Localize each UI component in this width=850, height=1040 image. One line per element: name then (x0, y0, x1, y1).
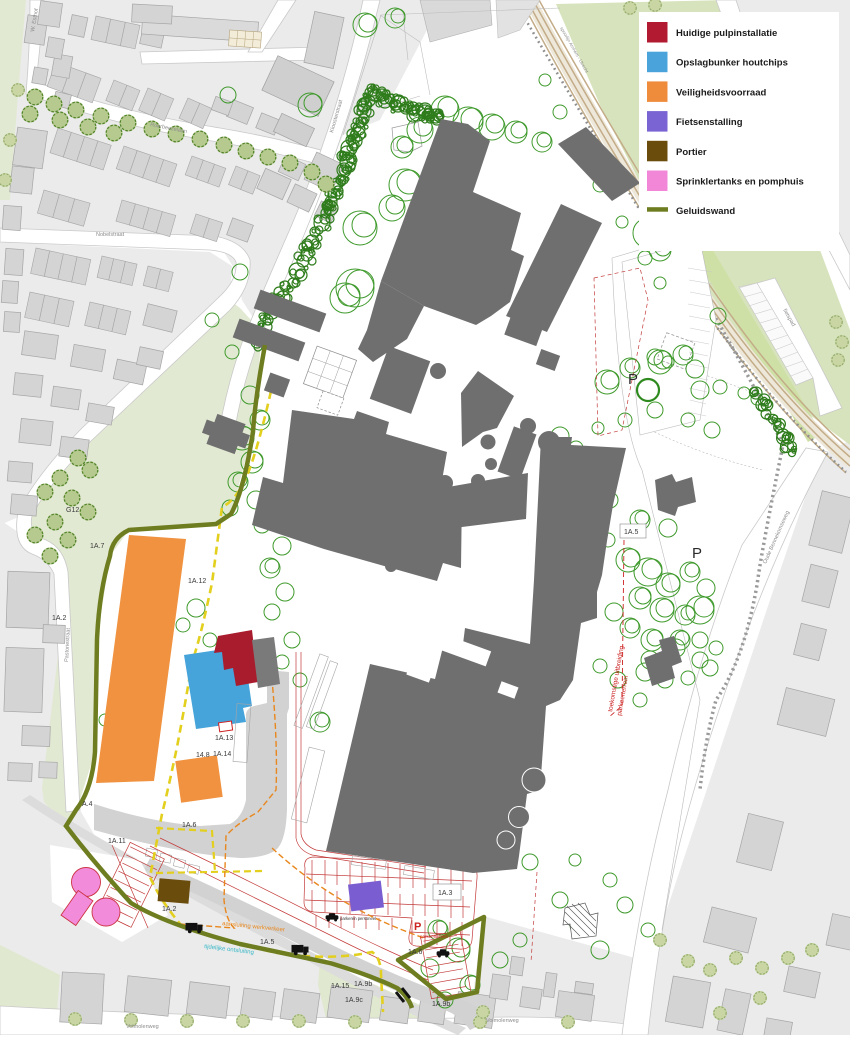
svg-text:1A.13: 1A.13 (215, 735, 233, 742)
svg-text:1A.6: 1A.6 (408, 949, 423, 956)
svg-text:P: P (628, 371, 638, 388)
svg-text:parkeerterrein: parkeerterrein (420, 934, 449, 939)
svg-text:Huidige pulpinstallatie: Huidige pulpinstallatie (676, 28, 777, 39)
svg-text:1A.7: 1A.7 (90, 543, 105, 550)
svg-text:Volmolenweg: Volmolenweg (126, 1024, 159, 1030)
svg-text:1A.2: 1A.2 (162, 906, 177, 913)
svg-text:1A.14: 1A.14 (213, 751, 231, 758)
svg-text:Geluidswand: Geluidswand (676, 206, 735, 217)
svg-text:P: P (692, 545, 702, 562)
svg-text:1A.9b: 1A.9b (432, 1001, 450, 1008)
svg-text:G12: G12 (66, 507, 79, 514)
svg-text:Volmolenweg: Volmolenweg (486, 1018, 519, 1024)
svg-text:Portier: Portier (676, 147, 707, 158)
svg-text:1A.15: 1A.15 (331, 983, 349, 990)
svg-text:1A.3: 1A.3 (438, 890, 453, 897)
svg-text:Fietsenstalling: Fietsenstalling (676, 117, 743, 128)
svg-text:1A.2: 1A.2 (52, 615, 67, 622)
svg-text:1A.12: 1A.12 (188, 578, 206, 585)
svg-text:P: P (414, 921, 421, 933)
svg-text:14.8: 14.8 (196, 752, 210, 759)
svg-text:parkeren personeel: parkeren personeel (340, 916, 376, 921)
svg-text:1A.9b: 1A.9b (354, 981, 372, 988)
svg-text:1A.5: 1A.5 (260, 939, 275, 946)
svg-text:A.4: A.4 (82, 801, 93, 808)
svg-text:Opslagbunker houtchips: Opslagbunker houtchips (676, 58, 788, 69)
svg-text:1A.6: 1A.6 (182, 822, 197, 829)
svg-text:Nobelstraat: Nobelstraat (96, 232, 125, 238)
svg-text:Sprinklertanks en pomphuis: Sprinklertanks en pomphuis (676, 177, 804, 188)
svg-text:Veiligheidsvoorraad: Veiligheidsvoorraad (676, 87, 766, 98)
svg-text:1A.11: 1A.11 (108, 838, 126, 845)
svg-text:1A.9c: 1A.9c (345, 997, 363, 1004)
svg-text:1A.5: 1A.5 (624, 529, 639, 536)
